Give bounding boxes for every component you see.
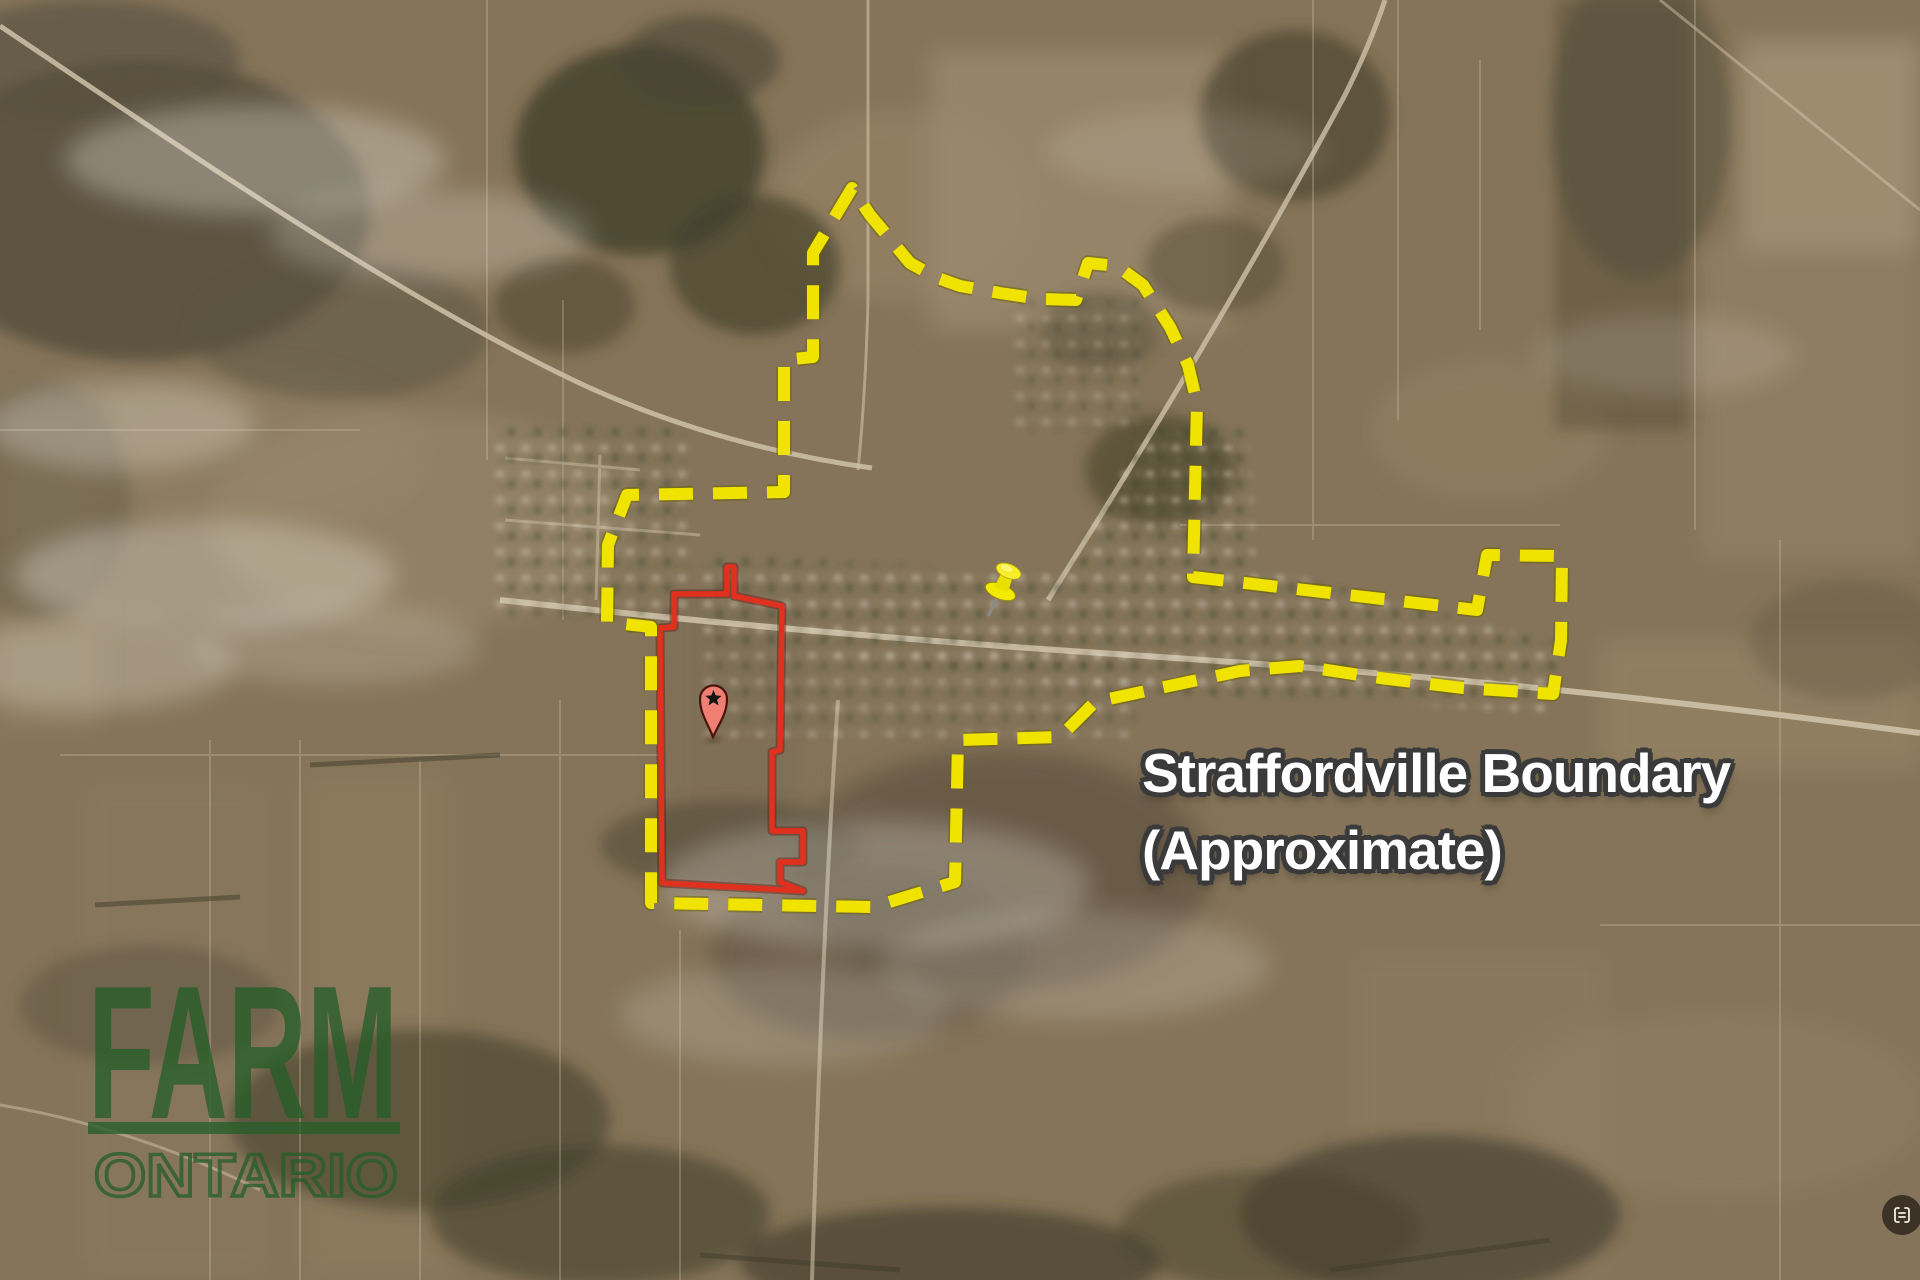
scan-icon[interactable] (1882, 1195, 1920, 1235)
boundary-label: Straffordville Boundary (Approximate) (1142, 735, 1730, 889)
boundary-label-line2: (Approximate) (1142, 812, 1730, 889)
map-viewport[interactable]: FARM ONTARIO Straffordville Boundary (Ap… (0, 0, 1920, 1280)
watermark-farm-ontario: FARM ONTARIO (88, 947, 400, 1209)
satellite-basemap[interactable]: FARM ONTARIO (0, 0, 1920, 1280)
watermark-bar (88, 1122, 400, 1134)
boundary-label-line1: Straffordville Boundary (1142, 735, 1730, 812)
watermark-ontario-text: ONTARIO (94, 1142, 398, 1209)
scan-icon-glyph (1890, 1203, 1914, 1227)
